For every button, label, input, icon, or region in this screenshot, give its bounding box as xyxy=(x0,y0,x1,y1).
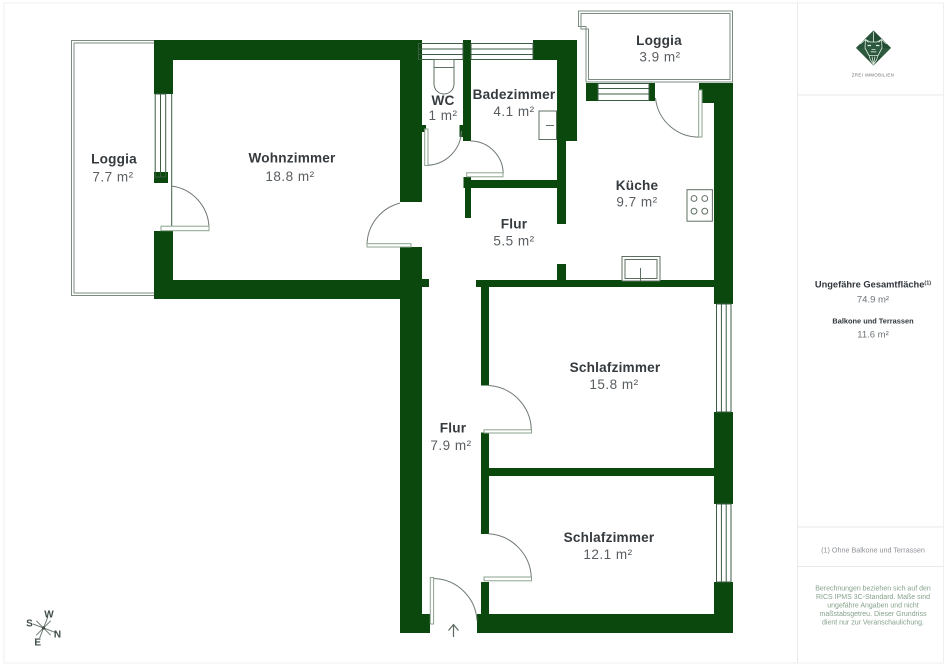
svg-text:Berechnungen beziehen sich auf: Berechnungen beziehen sich auf den xyxy=(815,586,931,593)
svg-text:Flur: Flur xyxy=(440,421,467,436)
svg-text:N: N xyxy=(54,630,61,641)
svg-text:Schlafzimmer: Schlafzimmer xyxy=(570,360,661,375)
svg-text:9.7 m²: 9.7 m² xyxy=(616,195,657,210)
svg-text:Loggia: Loggia xyxy=(91,152,137,167)
svg-text:Balkone und Terrassen: Balkone und Terrassen xyxy=(832,317,914,326)
svg-text:dient nur zur Veranschaulichun: dient nur zur Veranschaulichung. xyxy=(822,620,924,627)
svg-text:Loggia: Loggia xyxy=(636,33,682,48)
svg-text:4.1 m²: 4.1 m² xyxy=(493,104,534,119)
svg-text:Schlafzimmer: Schlafzimmer xyxy=(564,530,655,545)
svg-text:74.9 m²: 74.9 m² xyxy=(857,295,889,306)
svg-text:12.1 m²: 12.1 m² xyxy=(583,547,632,562)
svg-text:1 m²: 1 m² xyxy=(429,108,458,123)
svg-text:Ungefähre Gesamtfläche(1): Ungefähre Gesamtfläche(1) xyxy=(815,280,931,290)
svg-text:7.7 m²: 7.7 m² xyxy=(92,170,133,185)
svg-text:E: E xyxy=(34,638,41,649)
svg-text:Küche: Küche xyxy=(616,178,659,193)
svg-text:5.5 m²: 5.5 m² xyxy=(493,234,534,249)
svg-text:Wohnzimmer: Wohnzimmer xyxy=(248,151,336,166)
svg-text:RICS IPMS 3C-Standard. Maße si: RICS IPMS 3C-Standard. Maße sind xyxy=(816,594,930,601)
svg-text:15.8 m²: 15.8 m² xyxy=(589,377,638,392)
svg-text:11.6 m²: 11.6 m² xyxy=(857,330,889,341)
svg-text:(1) Ohne Balkone und Terrassen: (1) Ohne Balkone und Terrassen xyxy=(821,546,925,555)
svg-text:7.9 m²: 7.9 m² xyxy=(430,438,471,453)
svg-text:ungefähre Angaben und nicht: ungefähre Angaben und nicht xyxy=(827,603,919,610)
svg-text:WC: WC xyxy=(431,93,454,108)
svg-text:Flur: Flur xyxy=(501,217,528,232)
svg-text:3.9 m²: 3.9 m² xyxy=(639,50,680,65)
svg-text:maßstabsgetreu. Dieser Grundri: maßstabsgetreu. Dieser Grundriss xyxy=(820,611,927,618)
svg-text:Badezimmer: Badezimmer xyxy=(473,87,556,102)
svg-text:ZREI IMMOBILIEN: ZREI IMMOBILIEN xyxy=(852,73,894,78)
svg-text:W: W xyxy=(44,610,54,621)
svg-text:S: S xyxy=(26,619,33,630)
svg-text:18.8 m²: 18.8 m² xyxy=(265,169,314,184)
